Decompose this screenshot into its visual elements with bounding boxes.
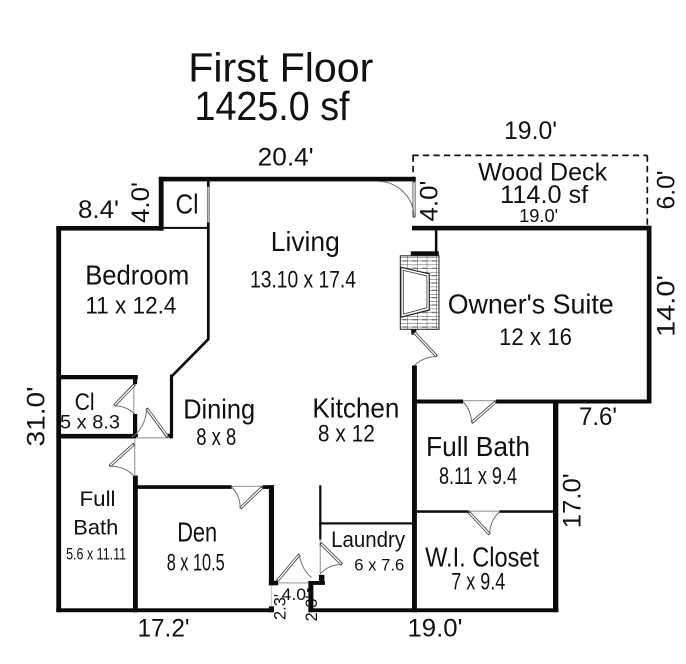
svg-text:31.0': 31.0' (23, 387, 51, 447)
svg-text:19.0': 19.0' (504, 117, 557, 145)
svg-text:20.4': 20.4' (258, 144, 314, 172)
svg-text:19.0': 19.0' (408, 615, 463, 643)
svg-text:8.11 x 9.4: 8.11 x 9.4 (439, 463, 517, 490)
svg-text:4.0': 4.0' (127, 182, 155, 223)
svg-text:17.0': 17.0' (559, 473, 587, 528)
svg-text:114.0 sf: 114.0 sf (500, 181, 588, 209)
svg-text:6 x 7.6: 6 x 7.6 (354, 555, 404, 574)
svg-text:Laundry: Laundry (331, 527, 405, 552)
svg-text:1425.0 sf: 1425.0 sf (195, 83, 351, 129)
svg-text:8.4': 8.4' (78, 196, 119, 224)
svg-text:Bath: Bath (73, 517, 118, 540)
svg-text:Den: Den (177, 516, 217, 547)
svg-text:Bedroom: Bedroom (85, 260, 189, 291)
svg-text:17.2': 17.2' (138, 615, 190, 643)
svg-text:19.0': 19.0' (519, 206, 558, 226)
svg-text:5 x 8.3: 5 x 8.3 (60, 413, 120, 434)
svg-text:8 x 10.5: 8 x 10.5 (167, 550, 225, 577)
svg-text:Full: Full (80, 488, 116, 511)
svg-text:Living: Living (271, 226, 340, 257)
svg-text:5.6 x 11.11: 5.6 x 11.11 (66, 545, 126, 564)
svg-text:4.0': 4.0' (415, 181, 443, 222)
svg-text:11 x 12.4: 11 x 12.4 (85, 293, 176, 320)
svg-text:Owner's Suite: Owner's Suite (448, 289, 614, 320)
svg-text:7 x 9.4: 7 x 9.4 (451, 569, 505, 596)
svg-text:Kitchen: Kitchen (312, 392, 399, 423)
svg-text:Full Bath: Full Bath (426, 431, 530, 462)
svg-text:8 x 12: 8 x 12 (318, 421, 375, 448)
svg-text:4.0': 4.0' (282, 585, 310, 604)
svg-text:Cl: Cl (176, 189, 199, 220)
svg-text:14.0': 14.0' (652, 275, 680, 337)
svg-text:13.10 x 17.4: 13.10 x 17.4 (250, 266, 356, 293)
svg-text:12 x 16: 12 x 16 (499, 324, 572, 351)
svg-text:7.6': 7.6' (579, 403, 617, 431)
svg-text:6.0': 6.0' (653, 171, 681, 210)
svg-text:Dining: Dining (183, 393, 255, 424)
svg-text:8 x 8: 8 x 8 (196, 424, 236, 451)
